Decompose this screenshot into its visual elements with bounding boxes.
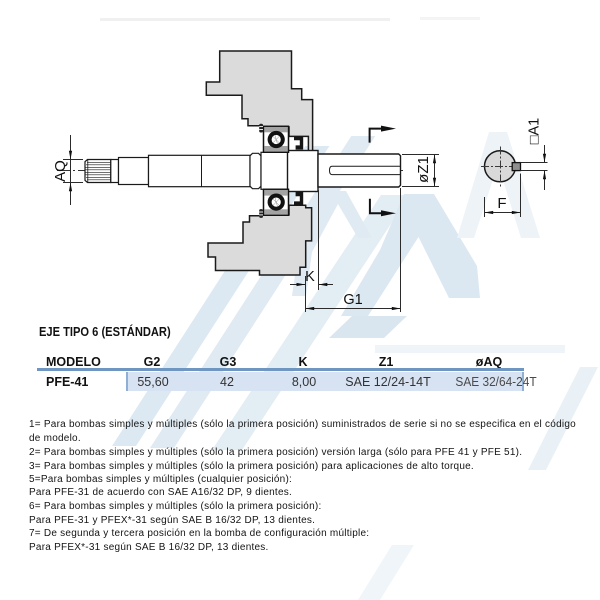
svg-text:G1: G1 bbox=[343, 292, 362, 308]
svg-text:□A1: □A1 bbox=[526, 118, 542, 145]
svg-text:F: F bbox=[497, 195, 506, 212]
svg-text:øZ1: øZ1 bbox=[415, 156, 432, 183]
svg-text:AQ: AQ bbox=[52, 160, 69, 182]
svg-text:K: K bbox=[305, 269, 315, 285]
